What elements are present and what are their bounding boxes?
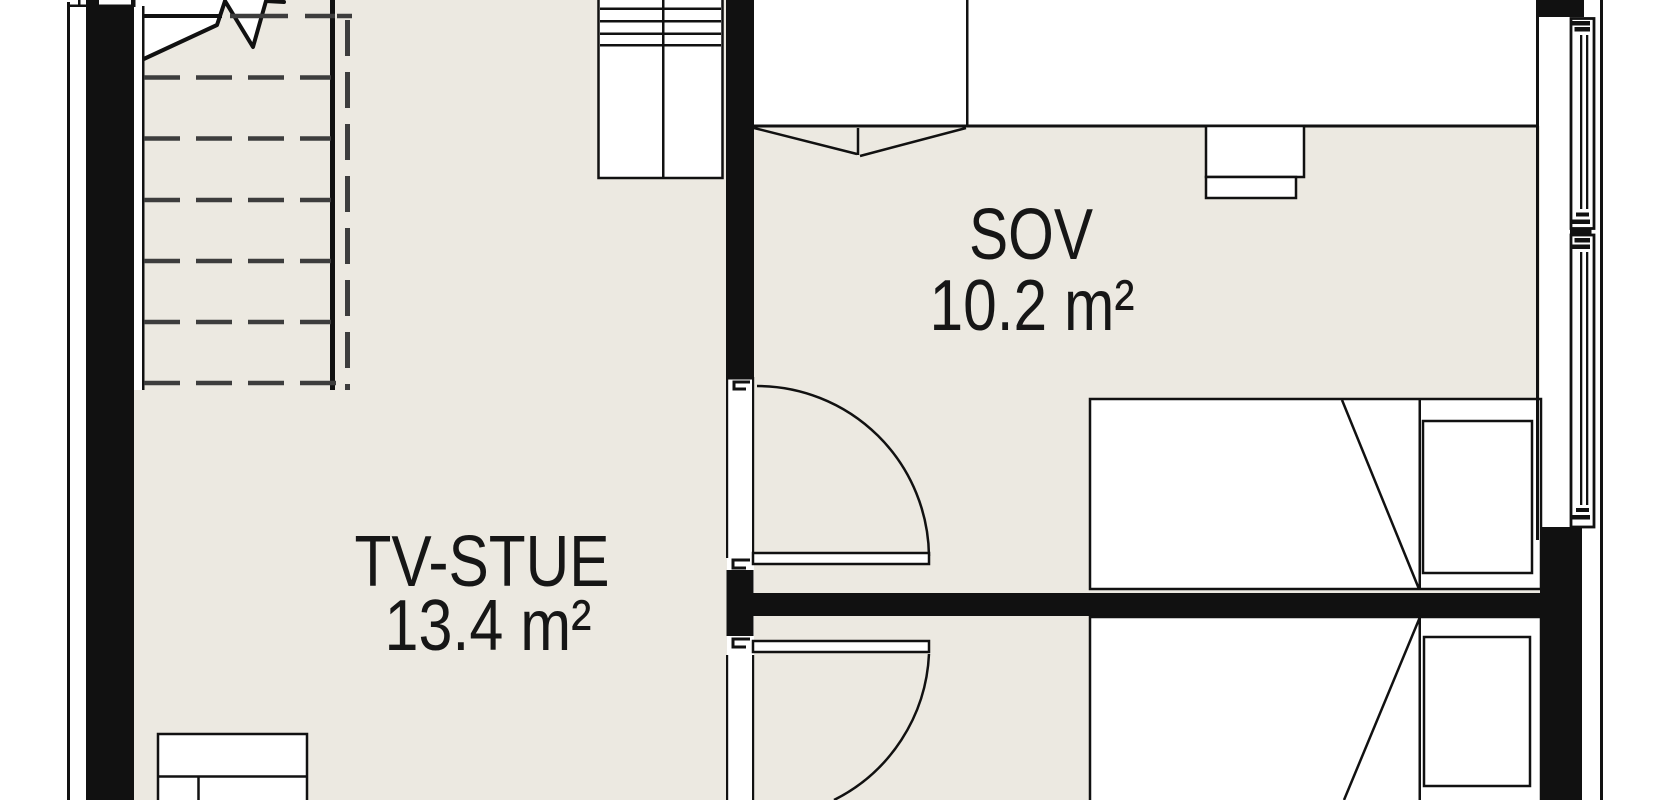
svg-text:SOV: SOV: [969, 195, 1093, 275]
svg-text:13.4 m²: 13.4 m²: [385, 586, 592, 666]
svg-text:10.2 m²: 10.2 m²: [930, 266, 1135, 346]
